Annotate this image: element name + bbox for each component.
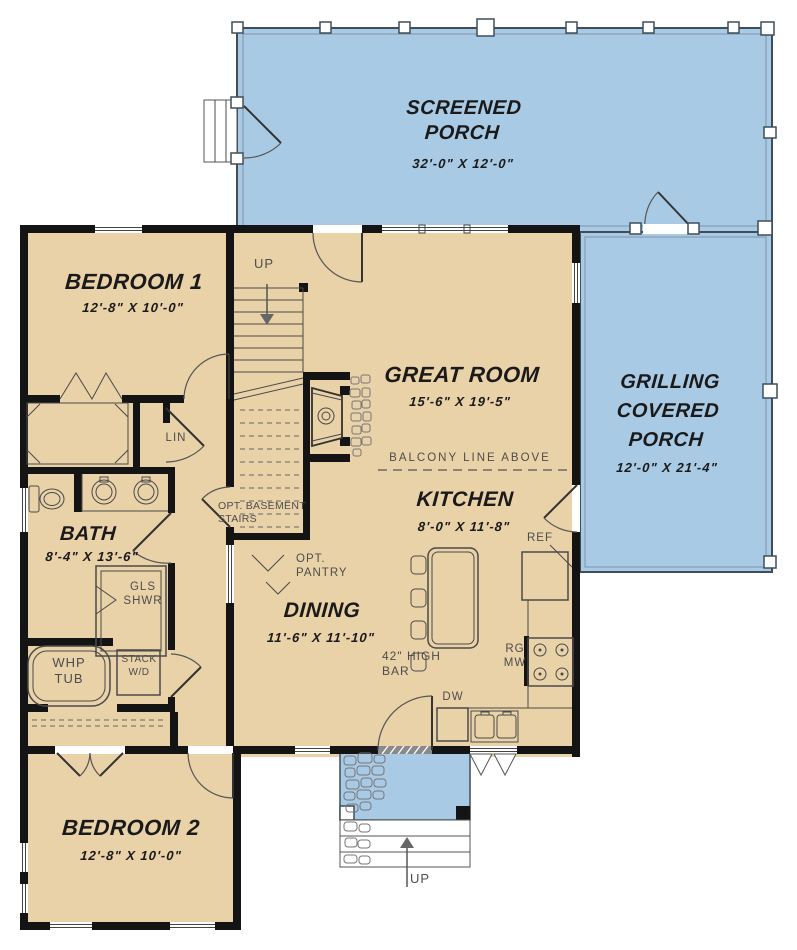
kitchen-label: KITCHEN xyxy=(416,487,515,513)
floor-plan-drawing xyxy=(0,0,797,950)
bedroom2-dims: 12'-8" X 10'-0" xyxy=(80,848,183,863)
bedroom2-label: BEDROOM 2 xyxy=(61,814,201,842)
kitchen-dims: 8'-0" X 11'-8" xyxy=(417,519,510,534)
screened-porch-dims: 32'-0" X 12'-0" xyxy=(412,156,515,171)
range-microwave-label: RG MW xyxy=(504,642,526,671)
high-bar-label: 42" HIGH BAR xyxy=(382,649,441,679)
front-door-threshold xyxy=(378,746,432,754)
bedroom1-label: BEDROOM 1 xyxy=(64,268,204,296)
stack-wd-label: STACK W/D xyxy=(121,654,156,679)
floor-plan: SCREENED PORCH 32'-0" X 12'-0" GRILLING … xyxy=(0,0,797,950)
refrigerator-label: REF xyxy=(527,531,553,545)
whirlpool-tub-label: WHP TUB xyxy=(52,655,85,688)
bedroom1-dims: 12'-8" X 10'-0" xyxy=(82,300,185,315)
grilling-porch-label: GRILLING COVERED PORCH xyxy=(614,368,722,455)
dishwasher-label: DW xyxy=(442,690,463,704)
great-room-label: GREAT ROOM xyxy=(384,361,541,389)
dining-label: DINING xyxy=(283,598,361,624)
grilling-porch-dims: 12'-0" X 21'-4" xyxy=(616,460,719,475)
screened-porch-label: SCREENED PORCH xyxy=(404,96,523,146)
bath-dims: 8'-4" X 13'-6" xyxy=(45,549,139,564)
opt-basement-stairs-label: OPT. BASEMENT STAIRS xyxy=(218,500,306,526)
great-room-dims: 15'-6" X 19'-5" xyxy=(409,394,512,409)
entry-up-label: UP xyxy=(410,871,430,887)
balcony-line-label: BALCONY LINE ABOVE xyxy=(389,451,551,465)
glass-shower-label: GLS SHWR xyxy=(123,580,162,609)
bath-label: BATH xyxy=(59,522,117,547)
opt-pantry-label: OPT. PANTRY xyxy=(296,552,348,581)
linen-closet-label: LIN xyxy=(166,431,187,445)
stairs-up-label: UP xyxy=(254,256,274,272)
dining-dims: 11'-6" X 11'-10" xyxy=(267,630,376,645)
